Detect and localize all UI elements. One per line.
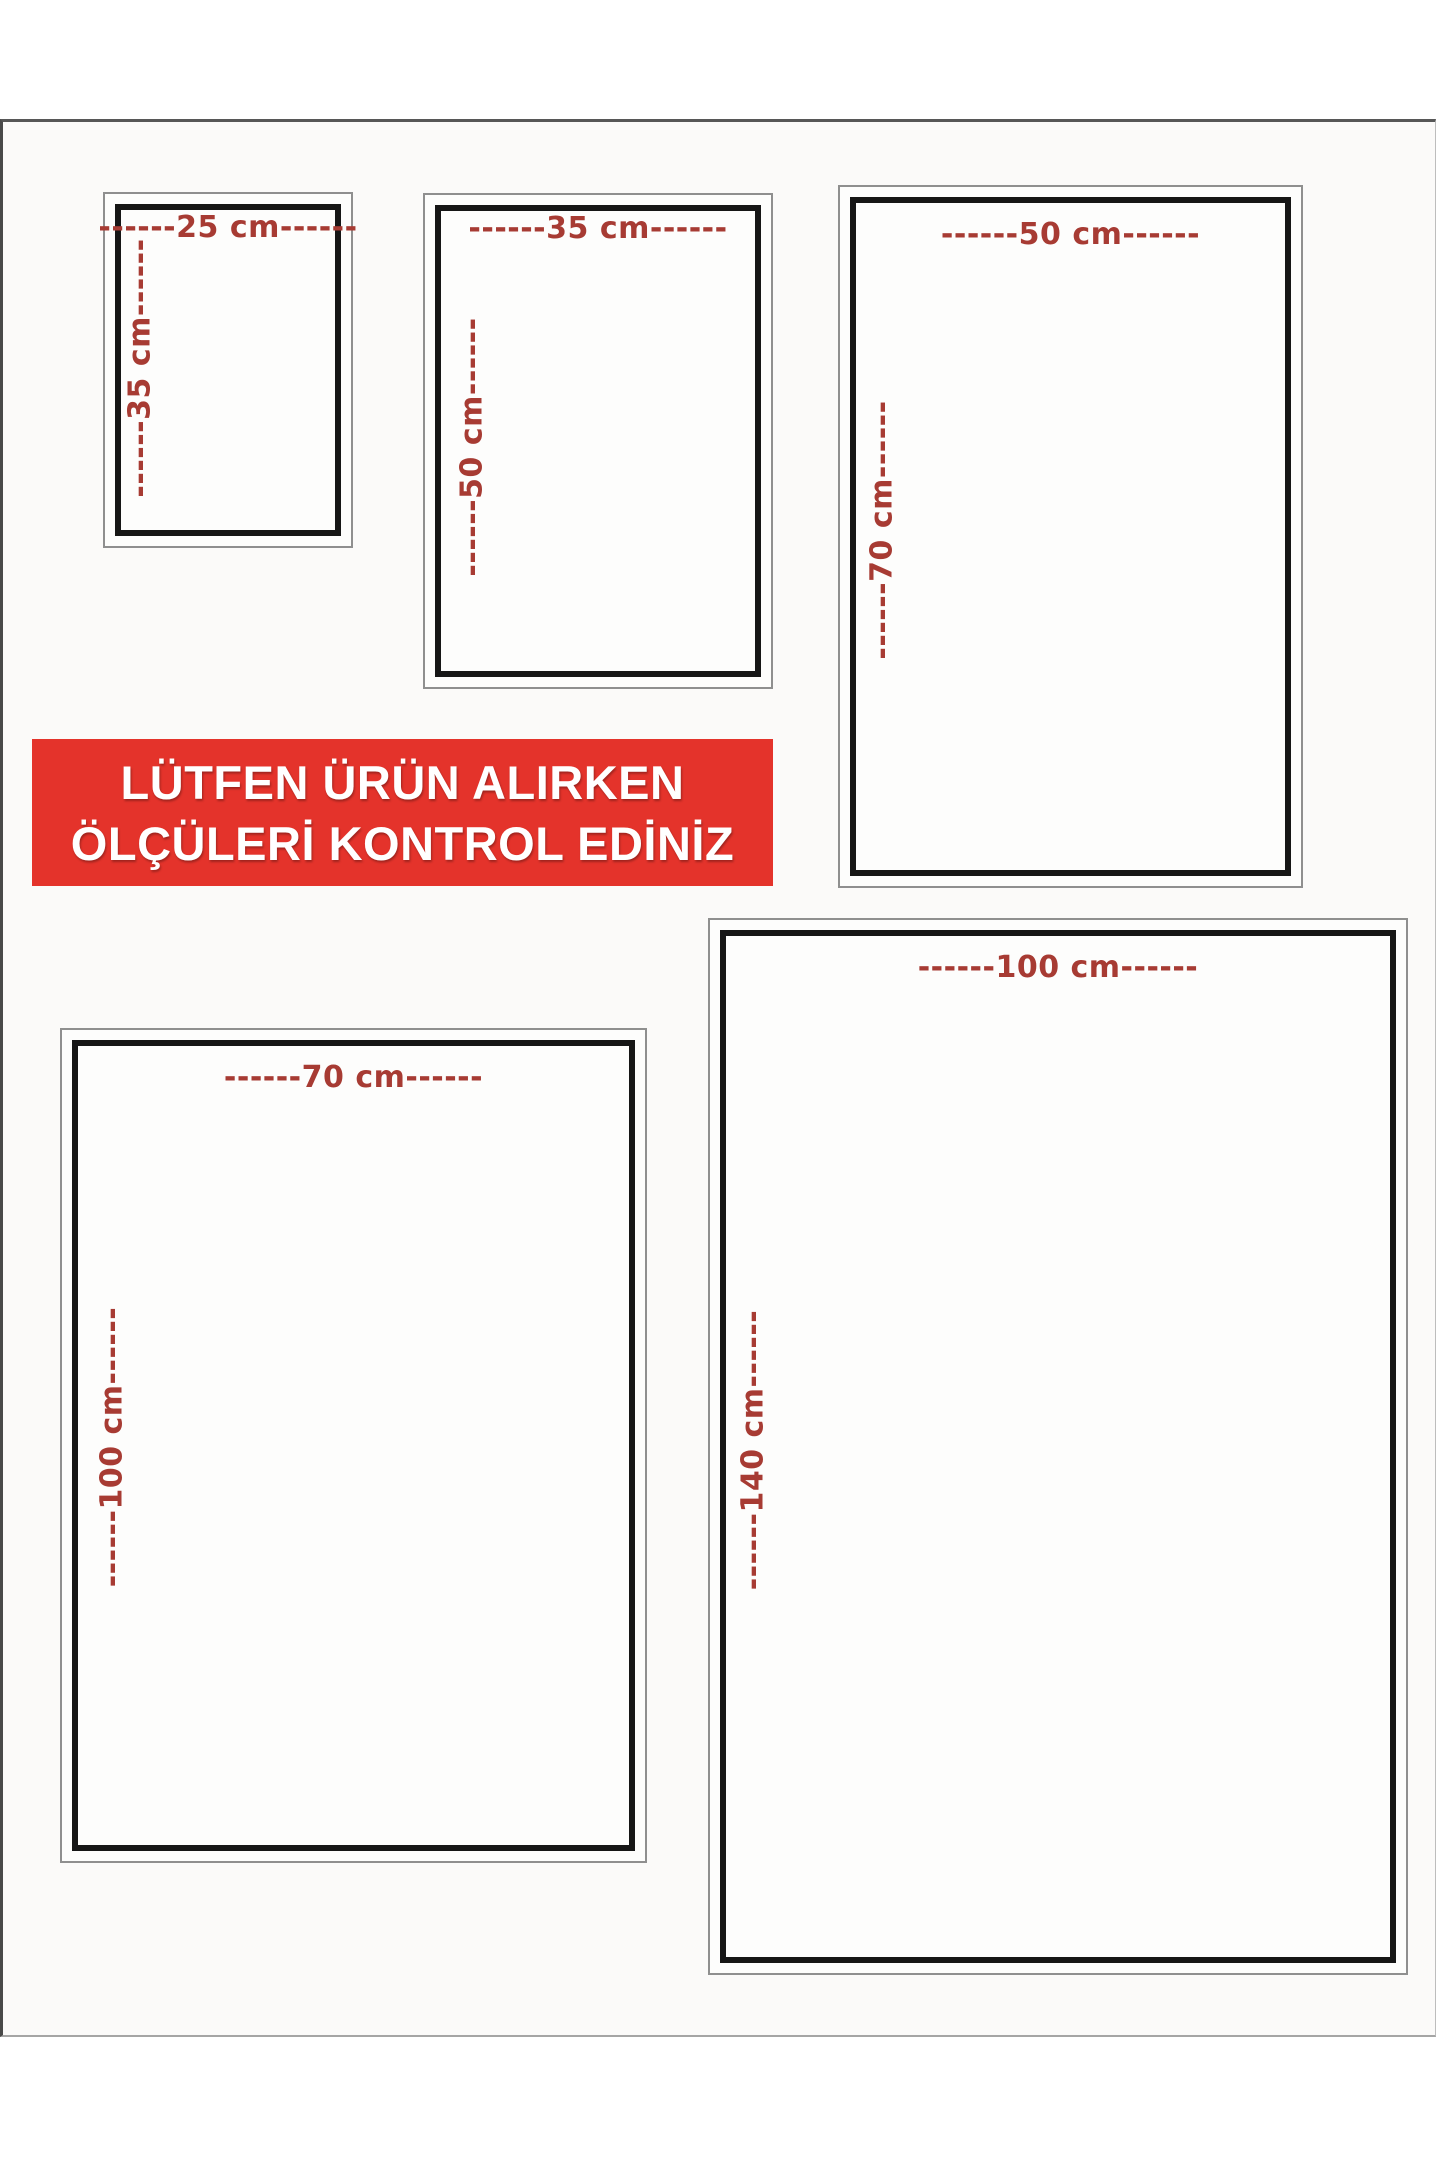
height-label-50cm: ------50 cm------ xyxy=(455,317,490,576)
height-label-140cm: ------140 cm------ xyxy=(736,1310,771,1591)
width-label-70cm: ------70 cm------ xyxy=(224,1060,483,1095)
size-box-70x100: ------70 cm------ ------100 cm------ xyxy=(60,1028,647,1863)
size-box-35x50: ------35 cm------ ------50 cm------ xyxy=(423,193,773,689)
height-label-70cm: ------70 cm------ xyxy=(865,400,900,659)
size-box-100x140-inner-frame xyxy=(720,930,1396,1963)
height-label-35cm: ------35 cm------ xyxy=(123,238,158,497)
size-box-100x140: ------100 cm------ ------140 cm------ xyxy=(708,918,1408,1975)
size-box-25x35: ------25 cm------ ------35 cm------ xyxy=(103,192,353,548)
width-label-35cm: ------35 cm------ xyxy=(468,211,727,246)
height-label-100cm: ------100 cm------ xyxy=(95,1307,130,1588)
warning-banner: LÜTFEN ÜRÜN ALIRKEN ÖLÇÜLERİ KONTROL EDİ… xyxy=(32,739,773,886)
width-label-50cm: ------50 cm------ xyxy=(941,217,1200,252)
size-box-50x70-inner-frame xyxy=(850,197,1291,876)
width-label-100cm: ------100 cm------ xyxy=(918,950,1199,985)
size-chart-page: ------25 cm------ ------35 cm------ ----… xyxy=(0,0,1440,2160)
warning-banner-line2: ÖLÇÜLERİ KONTROL EDİNİZ xyxy=(32,813,773,874)
size-box-50x70: ------50 cm------ ------70 cm------ xyxy=(838,185,1303,888)
size-box-70x100-inner-frame xyxy=(72,1040,635,1851)
warning-banner-line1: LÜTFEN ÜRÜN ALIRKEN xyxy=(32,752,773,813)
